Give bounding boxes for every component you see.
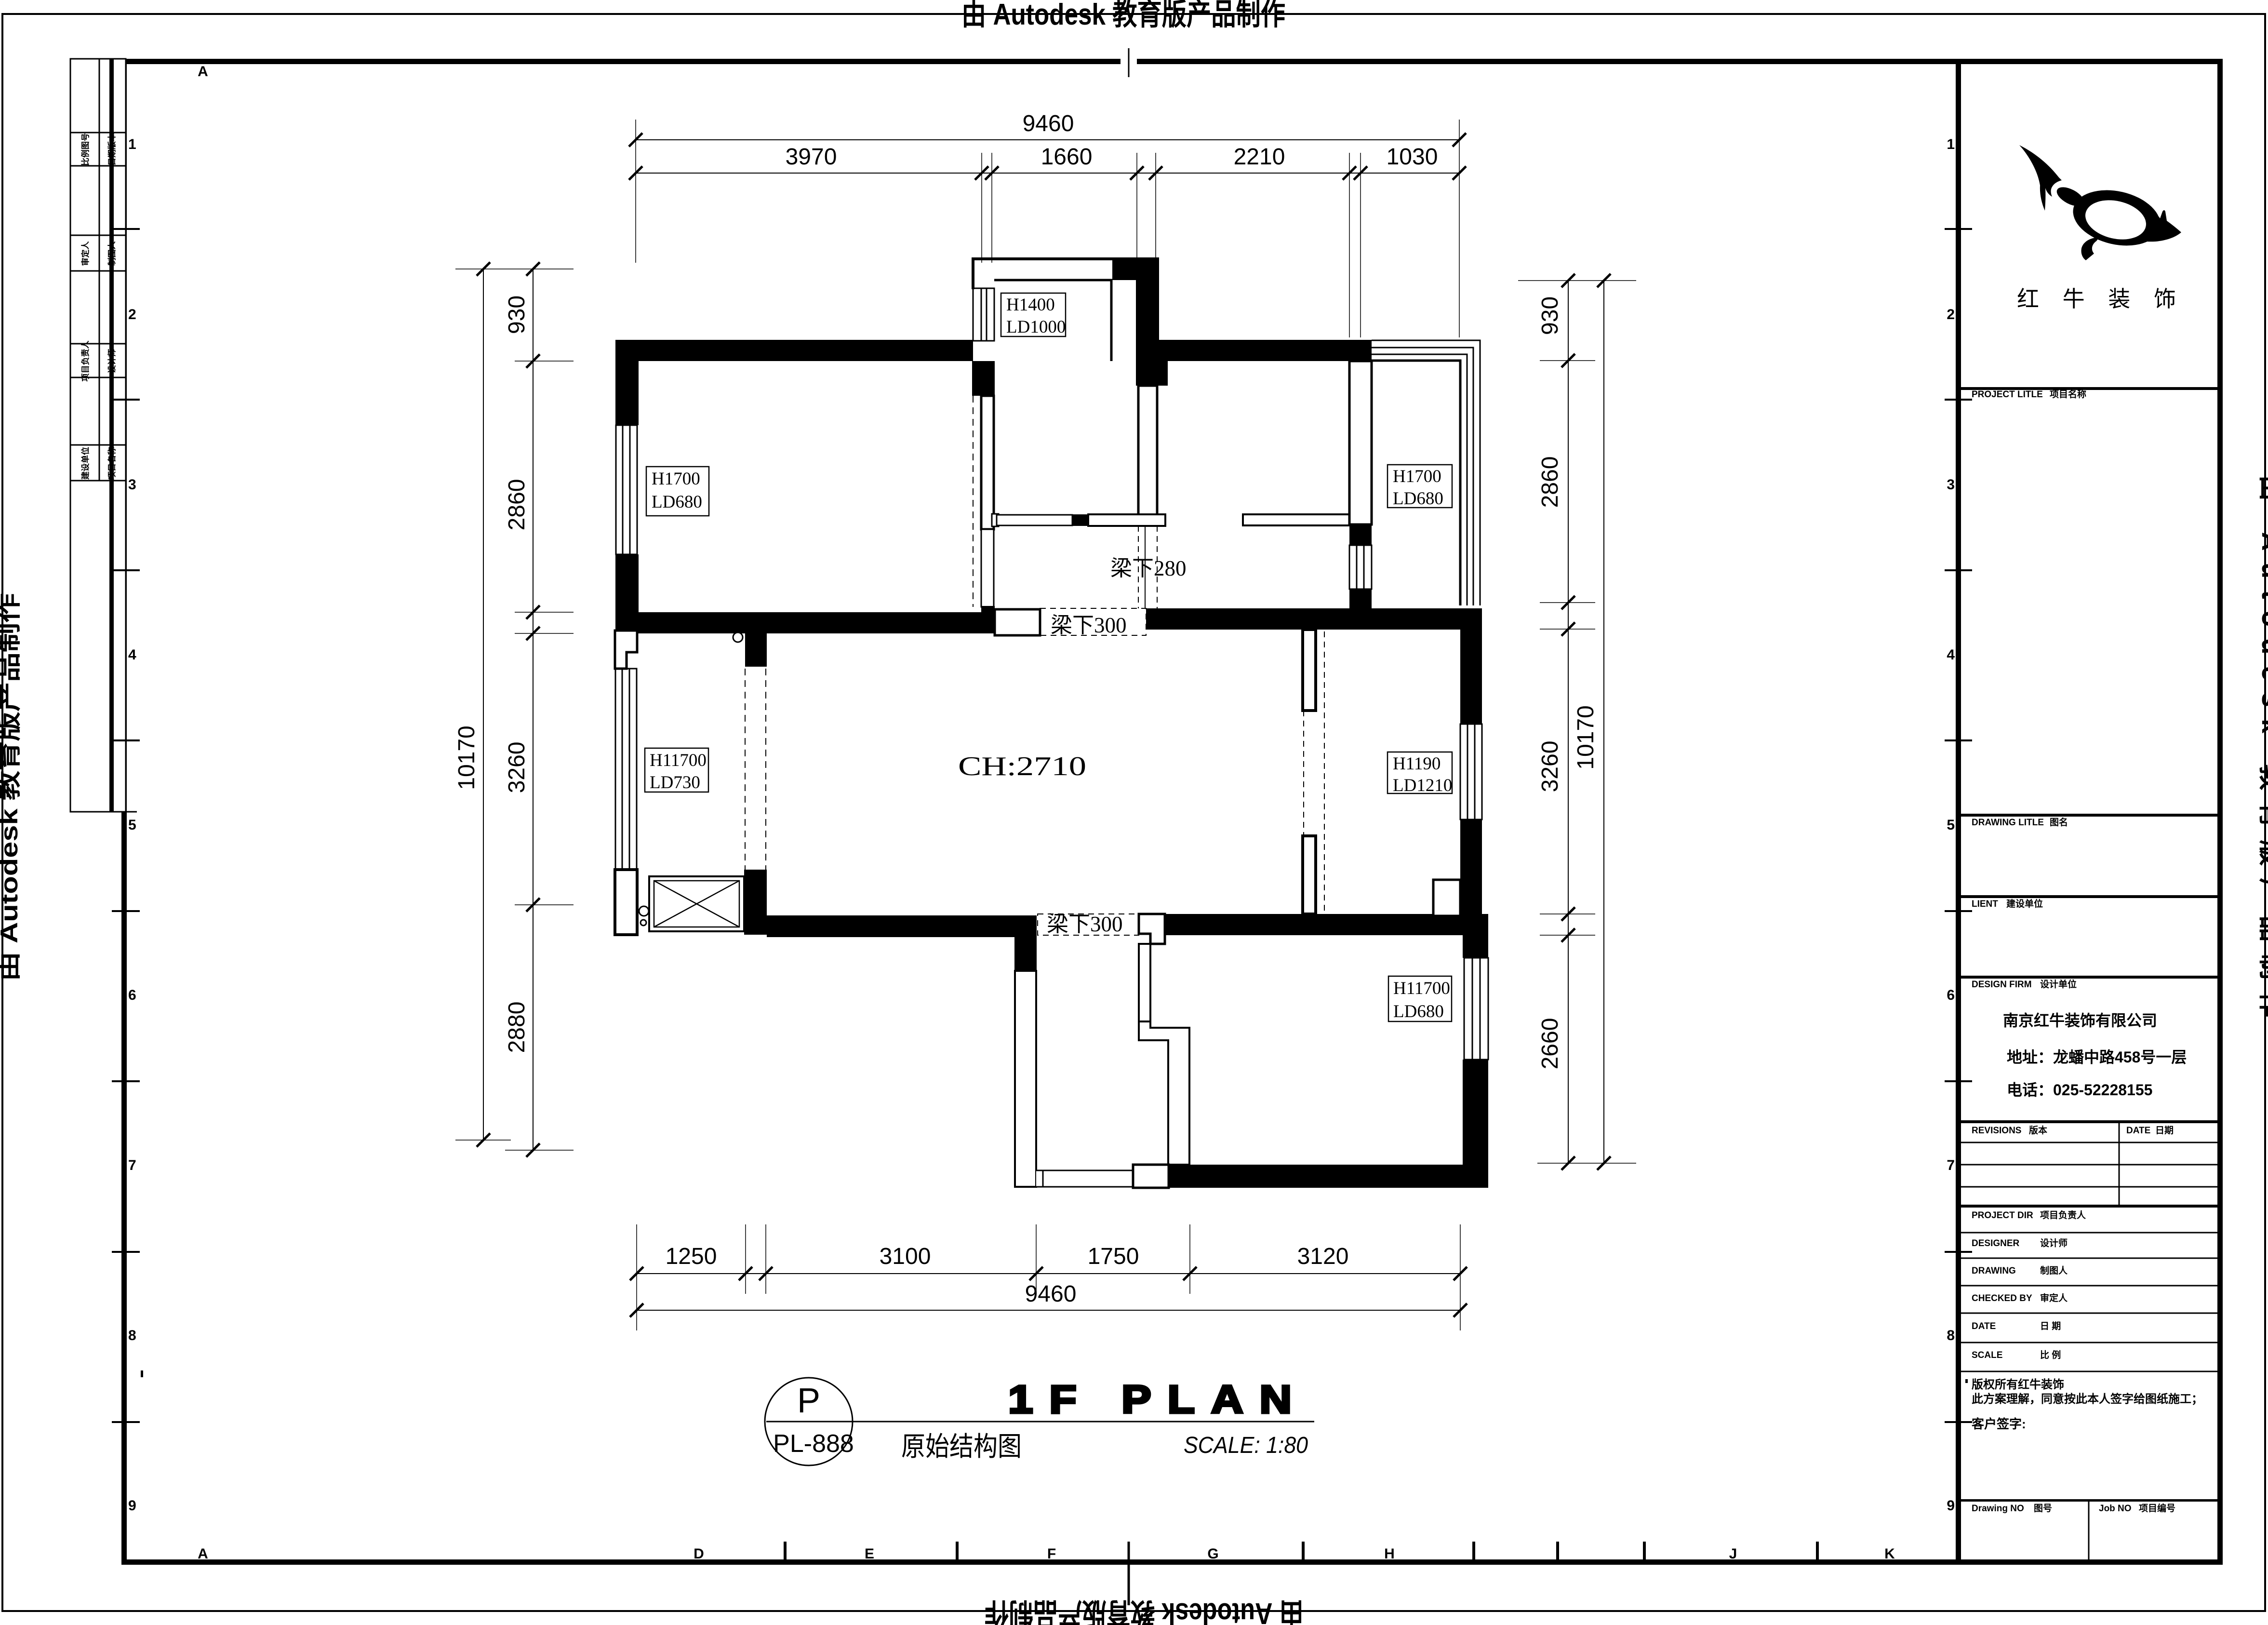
svg-text:3: 3: [128, 477, 136, 493]
svg-text:日 期: 日 期: [2040, 1321, 2061, 1331]
svg-text:日期版本: 日期版本: [107, 133, 117, 166]
svg-text:2860: 2860: [504, 479, 530, 531]
svg-text:8: 8: [128, 1328, 136, 1343]
svg-text:930: 930: [1537, 296, 1563, 335]
svg-text:6: 6: [1947, 987, 1955, 1003]
svg-text:由 Autodesk 教育版产品制作: 由 Autodesk 教育版产品制作: [0, 593, 23, 981]
svg-text:日期: 日期: [2155, 1125, 2174, 1136]
svg-text:DATE: DATE: [1972, 1321, 1996, 1331]
svg-text:南京红牛装饰有限公司: 南京红牛装饰有限公司: [2003, 1012, 2157, 1029]
svg-text:1250: 1250: [666, 1244, 717, 1269]
svg-text:1: 1: [128, 136, 136, 152]
svg-text:项目名称: 项目名称: [107, 447, 117, 480]
svg-text:2: 2: [1947, 307, 1955, 322]
svg-text:DESIGN FIRM: DESIGN FIRM: [1972, 980, 2032, 990]
svg-text:原始结构图: 原始结构图: [901, 1432, 1022, 1462]
svg-text:LD1000: LD1000: [1006, 317, 1066, 337]
svg-text:LD680: LD680: [1393, 489, 1443, 509]
svg-text:CHECKED BY: CHECKED BY: [1972, 1293, 2032, 1303]
svg-text:版权所有红牛装饰: 版权所有红牛装饰: [1972, 1378, 2064, 1391]
svg-text:项目负责人: 项目负责人: [2040, 1209, 2086, 1221]
svg-text:项目名称: 项目名称: [2050, 389, 2086, 400]
svg-text:图号: 图号: [2034, 1503, 2052, 1514]
svg-text:建设单位: 建设单位: [2006, 898, 2043, 909]
svg-text:PROJECT LITLE: PROJECT LITLE: [1972, 389, 2043, 400]
svg-text:A: A: [198, 64, 208, 80]
svg-text:10170: 10170: [1573, 705, 1599, 769]
svg-text:2210: 2210: [1234, 144, 1285, 170]
svg-text:5: 5: [128, 817, 136, 833]
svg-text:4: 4: [128, 647, 136, 663]
svg-text:2880: 2880: [504, 1002, 530, 1053]
svg-text:比例图号: 比例图号: [80, 133, 90, 166]
svg-text:审定人: 审定人: [80, 241, 90, 266]
svg-text:LIENT: LIENT: [1972, 899, 1998, 909]
svg-text:1: 1: [1947, 136, 1955, 152]
svg-text:电话：025-52228155: 电话：025-52228155: [2007, 1081, 2152, 1099]
svg-text:2: 2: [128, 307, 136, 322]
svg-text:设计单位: 设计单位: [2040, 979, 2077, 990]
svg-text:7: 7: [128, 1157, 136, 1173]
svg-text:此方案理解，同意按此本人签字给图纸施工；: 此方案理解，同意按此本人签字给图纸施工；: [1972, 1392, 2203, 1406]
svg-text:H: H: [1384, 1546, 1395, 1562]
svg-text:1750: 1750: [1088, 1244, 1139, 1269]
svg-text:由 Autodesk 教育版产品制作: 由 Autodesk 教育版产品制作: [985, 1597, 1304, 1625]
svg-text:5: 5: [1947, 817, 1955, 833]
svg-text:项目负责人: 项目负责人: [80, 340, 90, 382]
svg-text:A: A: [198, 1546, 208, 1562]
svg-text:3100: 3100: [880, 1244, 931, 1269]
svg-text:H11700: H11700: [1393, 979, 1450, 998]
svg-text:H1190: H1190: [1393, 754, 1441, 774]
svg-text:LD680: LD680: [652, 492, 702, 512]
svg-text:图名: 图名: [2050, 817, 2068, 828]
svg-text:建设单位: 建设单位: [80, 447, 90, 480]
svg-text:审定人: 审定人: [2040, 1292, 2068, 1303]
svg-text:J: J: [1729, 1546, 1737, 1562]
svg-text:项目编号: 项目编号: [2139, 1503, 2175, 1514]
svg-text:制图人: 制图人: [2040, 1265, 2068, 1276]
svg-text:SCALE: 1:80: SCALE: 1:80: [1184, 1433, 1308, 1458]
svg-text:3: 3: [1947, 477, 1955, 493]
svg-text:LD680: LD680: [1393, 1002, 1444, 1021]
svg-text:930: 930: [504, 295, 530, 334]
svg-text:设计师: 设计师: [107, 349, 117, 374]
svg-text:9: 9: [128, 1498, 136, 1514]
svg-text:PROJECT DIR: PROJECT DIR: [1972, 1210, 2033, 1221]
svg-text:2660: 2660: [1537, 1018, 1563, 1070]
svg-text:由 Autodesk 教育版产品制作: 由 Autodesk 教育版产品制作: [961, 0, 1285, 31]
svg-text:梁下300: 梁下300: [1047, 912, 1123, 936]
svg-text:9460: 9460: [1025, 1281, 1077, 1307]
svg-text:Job NO: Job NO: [2099, 1504, 2132, 1514]
svg-text:制图人: 制图人: [107, 241, 117, 266]
svg-text:梁下280: 梁下280: [1110, 556, 1187, 580]
svg-text:Drawing NO: Drawing NO: [1972, 1504, 2024, 1514]
svg-text:设计师: 设计师: [2040, 1238, 2068, 1249]
svg-text:7: 7: [1947, 1157, 1955, 1173]
svg-text:H1700: H1700: [1393, 467, 1441, 486]
svg-text:3260: 3260: [1537, 741, 1563, 792]
svg-text:D: D: [694, 1546, 704, 1562]
svg-text:8: 8: [1947, 1328, 1955, 1343]
svg-text:LD730: LD730: [650, 773, 700, 792]
svg-text:REVISIONS: REVISIONS: [1972, 1126, 2021, 1136]
svg-text:1030: 1030: [1387, 144, 1438, 170]
svg-text:DRAWING: DRAWING: [1972, 1266, 2016, 1276]
svg-text:H1700: H1700: [652, 469, 700, 489]
svg-text:DESIGNER: DESIGNER: [1972, 1238, 2020, 1249]
svg-text:SCALE: SCALE: [1972, 1350, 2002, 1360]
svg-text:G: G: [1207, 1546, 1218, 1562]
svg-text:K: K: [1884, 1546, 1895, 1562]
svg-text:1660: 1660: [1041, 144, 1093, 170]
svg-text:E: E: [865, 1546, 874, 1562]
svg-text:梁下300: 梁下300: [1051, 613, 1127, 637]
svg-text:P: P: [797, 1382, 820, 1420]
svg-text:版本: 版本: [2029, 1125, 2047, 1136]
svg-text:H11700: H11700: [650, 751, 707, 770]
svg-text:3120: 3120: [1297, 1244, 1349, 1269]
svg-text:6: 6: [128, 987, 136, 1003]
svg-text:客户签字:: 客户签字:: [1972, 1417, 2026, 1431]
svg-text:9460: 9460: [1023, 111, 1074, 136]
svg-text:1F PLAN: 1F PLAN: [1008, 1378, 1308, 1422]
svg-text:DATE: DATE: [2126, 1126, 2150, 1136]
svg-text:地址：龙蟠中路458号一层: 地址：龙蟠中路458号一层: [2007, 1048, 2187, 1066]
svg-text:3970: 3970: [786, 144, 837, 170]
svg-text:CH:2710: CH:2710: [958, 752, 1086, 781]
svg-text:9: 9: [1947, 1498, 1955, 1514]
svg-text:DRAWING LITLE: DRAWING LITLE: [1972, 818, 2044, 828]
svg-text:3260: 3260: [504, 742, 530, 793]
svg-text:F: F: [1047, 1546, 1056, 1562]
svg-text:4: 4: [1947, 647, 1955, 663]
svg-text:2860: 2860: [1537, 457, 1563, 508]
svg-text:PL-888: PL-888: [773, 1430, 854, 1458]
svg-text:H1400: H1400: [1006, 295, 1055, 315]
svg-text:LD1210: LD1210: [1393, 776, 1452, 795]
svg-text:比 例: 比 例: [2040, 1349, 2061, 1360]
svg-text:10170: 10170: [454, 725, 480, 790]
